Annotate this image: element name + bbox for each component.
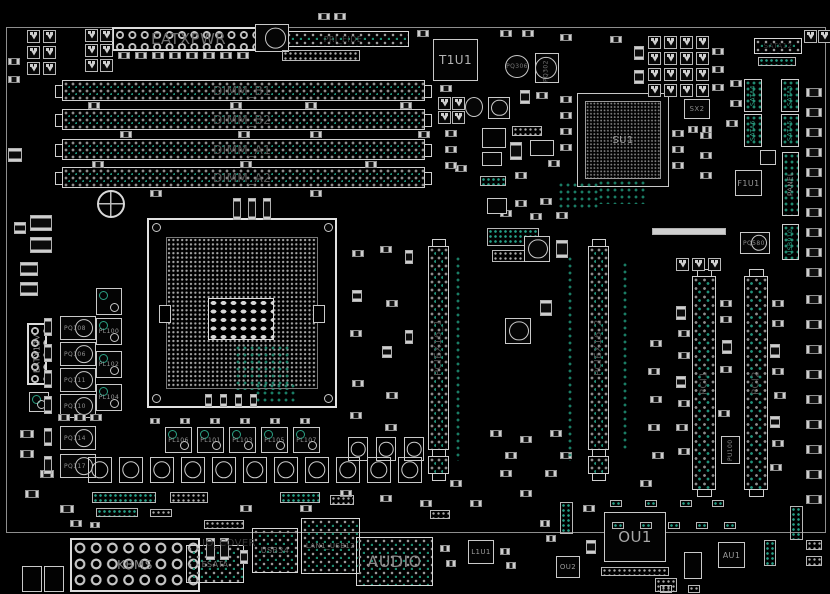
resistor [70, 520, 82, 527]
resistor [672, 162, 684, 169]
chip-au1[interactable]: AU1 [718, 542, 745, 568]
inductor-pl107[interactable]: PL107 [293, 427, 320, 453]
conn-sata3-label: SATA3 [782, 80, 798, 111]
conn-audio-label: AUDIO [357, 538, 432, 585]
chip-au1-label: AU1 [719, 543, 744, 567]
transistor [452, 97, 465, 110]
resistor [350, 330, 362, 337]
resistor [806, 370, 822, 379]
capacitor [586, 540, 596, 554]
capacitor [235, 394, 242, 407]
resistor [90, 522, 100, 528]
resistor [515, 200, 527, 207]
chip-t1u1[interactable]: T1U1 [433, 39, 478, 81]
resistor [8, 58, 20, 65]
resistor [386, 392, 398, 399]
capacitor [352, 290, 362, 302]
capacitor [220, 538, 229, 560]
pin-header [282, 50, 360, 61]
capacitor [520, 90, 530, 104]
resistor [650, 396, 662, 403]
capacitor [44, 428, 52, 446]
transistor [804, 30, 817, 43]
mosfet [505, 318, 531, 344]
conn-pri-eide-label: PRI_EIDE [278, 32, 408, 46]
resistor [806, 295, 822, 304]
resistor [774, 392, 786, 399]
chip-pu100-label: PU100 [722, 437, 739, 463]
resistor [74, 414, 86, 421]
resistor [712, 84, 724, 91]
transistor [708, 258, 721, 271]
chip-sx2-label: SX2 [685, 100, 709, 118]
mosfet-pq111[interactable]: PQ111 [60, 368, 96, 392]
resistor [560, 34, 572, 41]
resistor [440, 85, 452, 92]
resistor [530, 213, 542, 220]
resistor [352, 380, 364, 387]
conn-eatx12v-label: EATX12V [29, 325, 45, 383]
resistor [310, 131, 322, 138]
ic-chip [482, 128, 506, 148]
transistor [680, 84, 693, 97]
resistor [806, 395, 822, 404]
mosfet-pq302-label: PQ302 [536, 54, 558, 82]
resistor [446, 560, 456, 567]
socket-notch-right [313, 305, 325, 323]
chip-l1u1[interactable]: L1U1 [468, 540, 494, 564]
conn-kbms[interactable]: KBMS [70, 538, 200, 592]
resistor [210, 418, 220, 424]
capacitor [30, 237, 52, 253]
resistor [270, 418, 280, 424]
resistor [365, 161, 377, 168]
resistor [520, 436, 532, 443]
resistor [770, 464, 782, 471]
transistor [27, 30, 40, 43]
chip-ou2[interactable]: OU2 [556, 556, 580, 578]
resistor [806, 108, 822, 117]
resistor [20, 430, 34, 438]
pin-header [696, 522, 708, 529]
conn-kbms-label: KBMS [72, 540, 198, 590]
capacitor [676, 376, 686, 388]
conn-sata12-label: SATA12 [755, 39, 801, 53]
slot-pciex16-1-label: PCIEX16_1 [429, 247, 448, 449]
pin-header [758, 57, 796, 66]
resistor [420, 500, 432, 507]
socket-hole [152, 394, 161, 403]
resistor [678, 330, 690, 337]
inductor-pl105[interactable]: PL105 [261, 427, 288, 453]
trimmer [97, 190, 125, 218]
via-array [558, 182, 598, 208]
capacitor [634, 46, 644, 60]
inductor-pl106[interactable]: PL106 [165, 427, 192, 453]
chip-sx2[interactable]: SX2 [684, 99, 710, 119]
resistor [240, 418, 250, 424]
socket-hole [324, 394, 333, 403]
mosfet [524, 236, 550, 262]
resistor [540, 520, 550, 527]
resistor [445, 162, 457, 169]
chipset-su1[interactable]: SU1 [585, 101, 661, 179]
resistor [806, 188, 822, 197]
conn-panel[interactable]: PANEL [782, 152, 799, 216]
resistor [806, 495, 822, 504]
mosfet-near-eide [255, 24, 289, 52]
resistor [548, 160, 560, 167]
capacitor [88, 457, 112, 483]
resistor [806, 470, 822, 479]
resistor [58, 414, 70, 421]
capacitor [382, 346, 392, 358]
capacitor [348, 437, 368, 461]
inductor-pl103[interactable]: PL103 [229, 427, 256, 453]
conn-sata3[interactable]: SATA3 [781, 79, 799, 112]
cpu-socket-cavity [208, 298, 274, 340]
transistor [692, 258, 705, 271]
capacitor [510, 142, 522, 160]
resistor [240, 505, 252, 512]
transistor [100, 59, 113, 72]
capacitor [220, 394, 227, 407]
ic-chip [684, 552, 702, 579]
pin-header [640, 522, 652, 529]
pin-header [430, 510, 450, 519]
conn-eatxpwr-label: EATXPWR [114, 29, 263, 49]
inductor-pl100-label: PL100 [97, 319, 121, 344]
conn-esata[interactable]: ESATA [186, 545, 244, 583]
conn-pri-eide[interactable]: PRI_EIDE [277, 31, 409, 47]
pin-header [660, 585, 672, 593]
slot-dimm-b2[interactable]: DIMM_B2 [62, 109, 425, 130]
transistor [85, 29, 98, 42]
conn-audio[interactable]: AUDIO [356, 537, 433, 586]
resistor [806, 445, 822, 454]
capacitor [404, 437, 424, 461]
via-array [598, 180, 648, 204]
slot-pci1-label: PCI1 [693, 277, 715, 489]
transistor [696, 84, 709, 97]
slot-pciex16-2-label: PCIEX16_2 [589, 247, 608, 449]
pin-header [612, 522, 624, 529]
capacitor [405, 250, 413, 264]
transistor [696, 52, 709, 65]
capacitor [44, 318, 52, 336]
socket-hole [324, 223, 333, 232]
pin-header [492, 250, 526, 262]
resistor [806, 208, 822, 217]
inductor-pl102[interactable]: PL102 [96, 351, 122, 378]
pin-header [92, 492, 156, 503]
pin-header [806, 556, 822, 566]
transistor [648, 36, 661, 49]
capacitor [44, 396, 52, 414]
capacitor [150, 457, 174, 483]
resistor [678, 400, 690, 407]
resistor [520, 490, 532, 497]
resistor [648, 368, 660, 375]
capacitor [676, 306, 686, 320]
mosfet-pq108[interactable]: PQ108 [60, 316, 96, 340]
inductor-pl101-label: PL101 [198, 428, 223, 452]
slot-dimm-a1[interactable]: DIMM_A1 [62, 139, 425, 160]
capacitor [119, 457, 143, 483]
pin-header [610, 500, 622, 507]
via-array [455, 256, 462, 461]
resistor [806, 345, 822, 354]
resistor [300, 505, 312, 512]
resistor [772, 320, 784, 327]
resistor [400, 102, 412, 109]
transistor [664, 68, 677, 81]
ic-chip [44, 566, 64, 592]
resistor [678, 448, 690, 455]
resistor [806, 88, 822, 97]
capacitor [30, 215, 52, 231]
transistor [100, 29, 113, 42]
resistor [700, 172, 712, 179]
socket-notch-left [159, 305, 171, 323]
resistor [700, 132, 712, 139]
transistor [100, 44, 113, 57]
resistor [806, 128, 822, 137]
socket-hole [152, 223, 161, 232]
slot-pciex16-2[interactable]: PCIEX16_2 [588, 246, 609, 450]
slot-dimm-b1-label: DIMM_B1 [63, 81, 424, 100]
capacitor [206, 538, 215, 560]
capacitor [44, 370, 52, 388]
chip-t1u1-label: T1U1 [434, 40, 477, 80]
transistor [438, 97, 451, 110]
inductor-pl104-label: PL104 [97, 385, 121, 410]
resistor [720, 366, 732, 373]
via-array [622, 262, 629, 452]
resistor [648, 424, 660, 431]
capacitor [248, 198, 256, 220]
inductor-pl100[interactable]: PL100 [96, 318, 122, 345]
ic-chip [530, 140, 554, 156]
resistor [515, 172, 527, 179]
conn-sata6[interactable]: SATA6 [744, 114, 762, 147]
resistor [650, 340, 662, 347]
resistor [310, 190, 322, 197]
conn-sata12[interactable]: SATA12 [754, 38, 802, 54]
resistor [720, 316, 732, 323]
inductor-pl103-label: PL103 [230, 428, 255, 452]
resistor [556, 212, 568, 219]
resistor [505, 452, 517, 459]
capacitor [770, 416, 780, 428]
chip-f1u1[interactable]: F1U1 [735, 170, 762, 196]
transistor [438, 111, 451, 124]
resistor [380, 246, 392, 253]
resistor [150, 418, 160, 424]
resistor [806, 248, 822, 257]
resistor [806, 168, 822, 177]
slot-dimm-a2[interactable]: DIMM_A2 [62, 167, 425, 188]
transistor [818, 30, 830, 43]
resistor [238, 131, 250, 138]
resistor [203, 52, 215, 59]
resistor [25, 490, 39, 498]
resistor [652, 452, 664, 459]
conn-sata6-label: SATA6 [745, 115, 761, 146]
chip-ou2-label: OU2 [557, 557, 579, 577]
resistor [418, 131, 430, 138]
chip-pu100[interactable]: PU100 [721, 436, 740, 464]
transistor [664, 36, 677, 49]
capacitor [44, 344, 52, 362]
resistor [772, 368, 784, 375]
transistor-pq306[interactable]: PQ306 [505, 55, 529, 78]
resistor [806, 148, 822, 157]
transistor [43, 30, 56, 43]
resistor [440, 545, 450, 552]
capacitor [20, 262, 38, 276]
capacitor [770, 344, 780, 358]
resistor [545, 470, 557, 477]
inductor-pl101[interactable]: PL101 [197, 427, 224, 453]
inductor-pl106-label: PL106 [166, 428, 191, 452]
capacitor [263, 198, 271, 220]
resistor [583, 505, 595, 512]
resistor [92, 161, 104, 168]
resistor [500, 30, 512, 37]
resistor [720, 300, 732, 307]
resistor [730, 80, 742, 87]
conn-sata5-label: SATA5 [782, 115, 798, 146]
resistor [500, 470, 512, 477]
resistor [470, 500, 482, 507]
inductor-pl104[interactable]: PL104 [96, 384, 122, 411]
pin-header [512, 126, 542, 136]
resistor [730, 100, 742, 107]
resistor [305, 102, 317, 109]
transistor [676, 258, 689, 271]
slot-pciex16-1-tail[interactable] [428, 456, 449, 474]
resistor [560, 96, 572, 103]
pin-header [764, 540, 776, 566]
resistor [240, 161, 252, 168]
pin-header [668, 522, 680, 529]
via-array [567, 256, 574, 461]
mosfet-pq580[interactable]: PQ580 [740, 232, 770, 254]
mosfet [488, 97, 510, 119]
slot-pciex16-1[interactable]: PCIEX16_1 [428, 246, 449, 450]
conn-usb34-label: USB34 [253, 529, 297, 572]
resistor [152, 52, 164, 59]
resistor [772, 300, 784, 307]
resistor [186, 52, 198, 59]
resistor [450, 480, 462, 487]
resistor [560, 144, 572, 151]
transistor [85, 44, 98, 57]
resistor [726, 120, 738, 127]
transistor [664, 52, 677, 65]
chip-ou1-label: OU1 [605, 513, 665, 561]
conn-usb910[interactable]: USB910 [782, 224, 799, 260]
slot-pci2[interactable]: PCI2 [744, 276, 768, 490]
mosfet-pq114-label: PQ114 [61, 427, 95, 449]
conn-lan1-usb12[interactable]: LAN1_USB12 [301, 518, 360, 574]
resistor [700, 152, 712, 159]
conn-usb34[interactable]: USB34 [252, 528, 298, 573]
chip-f1u1-label: F1U1 [736, 171, 761, 195]
via-array [255, 383, 295, 405]
resistor [150, 190, 162, 197]
resistor [445, 130, 457, 137]
resistor [352, 250, 364, 257]
capacitor [240, 550, 248, 564]
conn-sata4[interactable]: SATA4 [744, 79, 762, 112]
resistor [560, 128, 572, 135]
mosfet-pq108-label: PQ108 [61, 317, 95, 339]
resistor [672, 146, 684, 153]
resistor [676, 424, 688, 431]
pin-header [170, 492, 208, 503]
capacitor [44, 456, 52, 474]
resistor [350, 412, 362, 419]
mosfet-pq106[interactable]: PQ106 [60, 342, 96, 366]
resistor [60, 505, 74, 513]
resistor [610, 36, 622, 43]
conn-sata5[interactable]: SATA5 [781, 114, 799, 147]
ic-chip [487, 198, 507, 214]
conn-sata4-label: SATA4 [745, 80, 761, 111]
capacitor [376, 437, 396, 461]
transistor [85, 59, 98, 72]
transistor [696, 36, 709, 49]
slot-pciex16-2-tail[interactable] [588, 456, 609, 474]
transistor [648, 52, 661, 65]
resistor [220, 52, 232, 59]
chip-ou1[interactable]: OU1 [604, 512, 666, 562]
transistor [465, 97, 483, 117]
chip-l1u1-label: L1U1 [469, 541, 493, 563]
resistor [672, 130, 684, 137]
resistor [678, 352, 690, 359]
capacitor [205, 394, 212, 407]
pin-header [204, 520, 244, 529]
resistor [712, 48, 724, 55]
mosfet-pq111-label: PQ111 [61, 369, 95, 391]
resistor [560, 112, 572, 119]
pin-header [96, 508, 138, 517]
capacitor [14, 222, 26, 234]
capacitor [212, 457, 236, 483]
ic-chip [760, 150, 776, 165]
slot-dimm-a1-label: DIMM_A1 [63, 140, 424, 159]
resistor [300, 418, 310, 424]
conn-eatxpwr[interactable]: EATXPWR [112, 27, 265, 51]
pin-header [150, 509, 172, 517]
resistor [169, 52, 181, 59]
capacitor [722, 340, 732, 354]
long-bar [652, 228, 726, 235]
conn-panel-label: PANEL [783, 153, 798, 215]
pin-header [330, 495, 354, 505]
mosfet-pq114[interactable]: PQ114 [60, 426, 96, 450]
slot-dimm-b2-label: DIMM_B2 [63, 110, 424, 129]
transistor [452, 111, 465, 124]
mosfet-pq302[interactable]: PQ302 [535, 53, 559, 83]
slot-dimm-b1[interactable]: DIMM_B1 [62, 80, 425, 101]
resistor [230, 102, 242, 109]
resistor [522, 30, 534, 37]
slot-pci1[interactable]: PCI1 [692, 276, 716, 490]
